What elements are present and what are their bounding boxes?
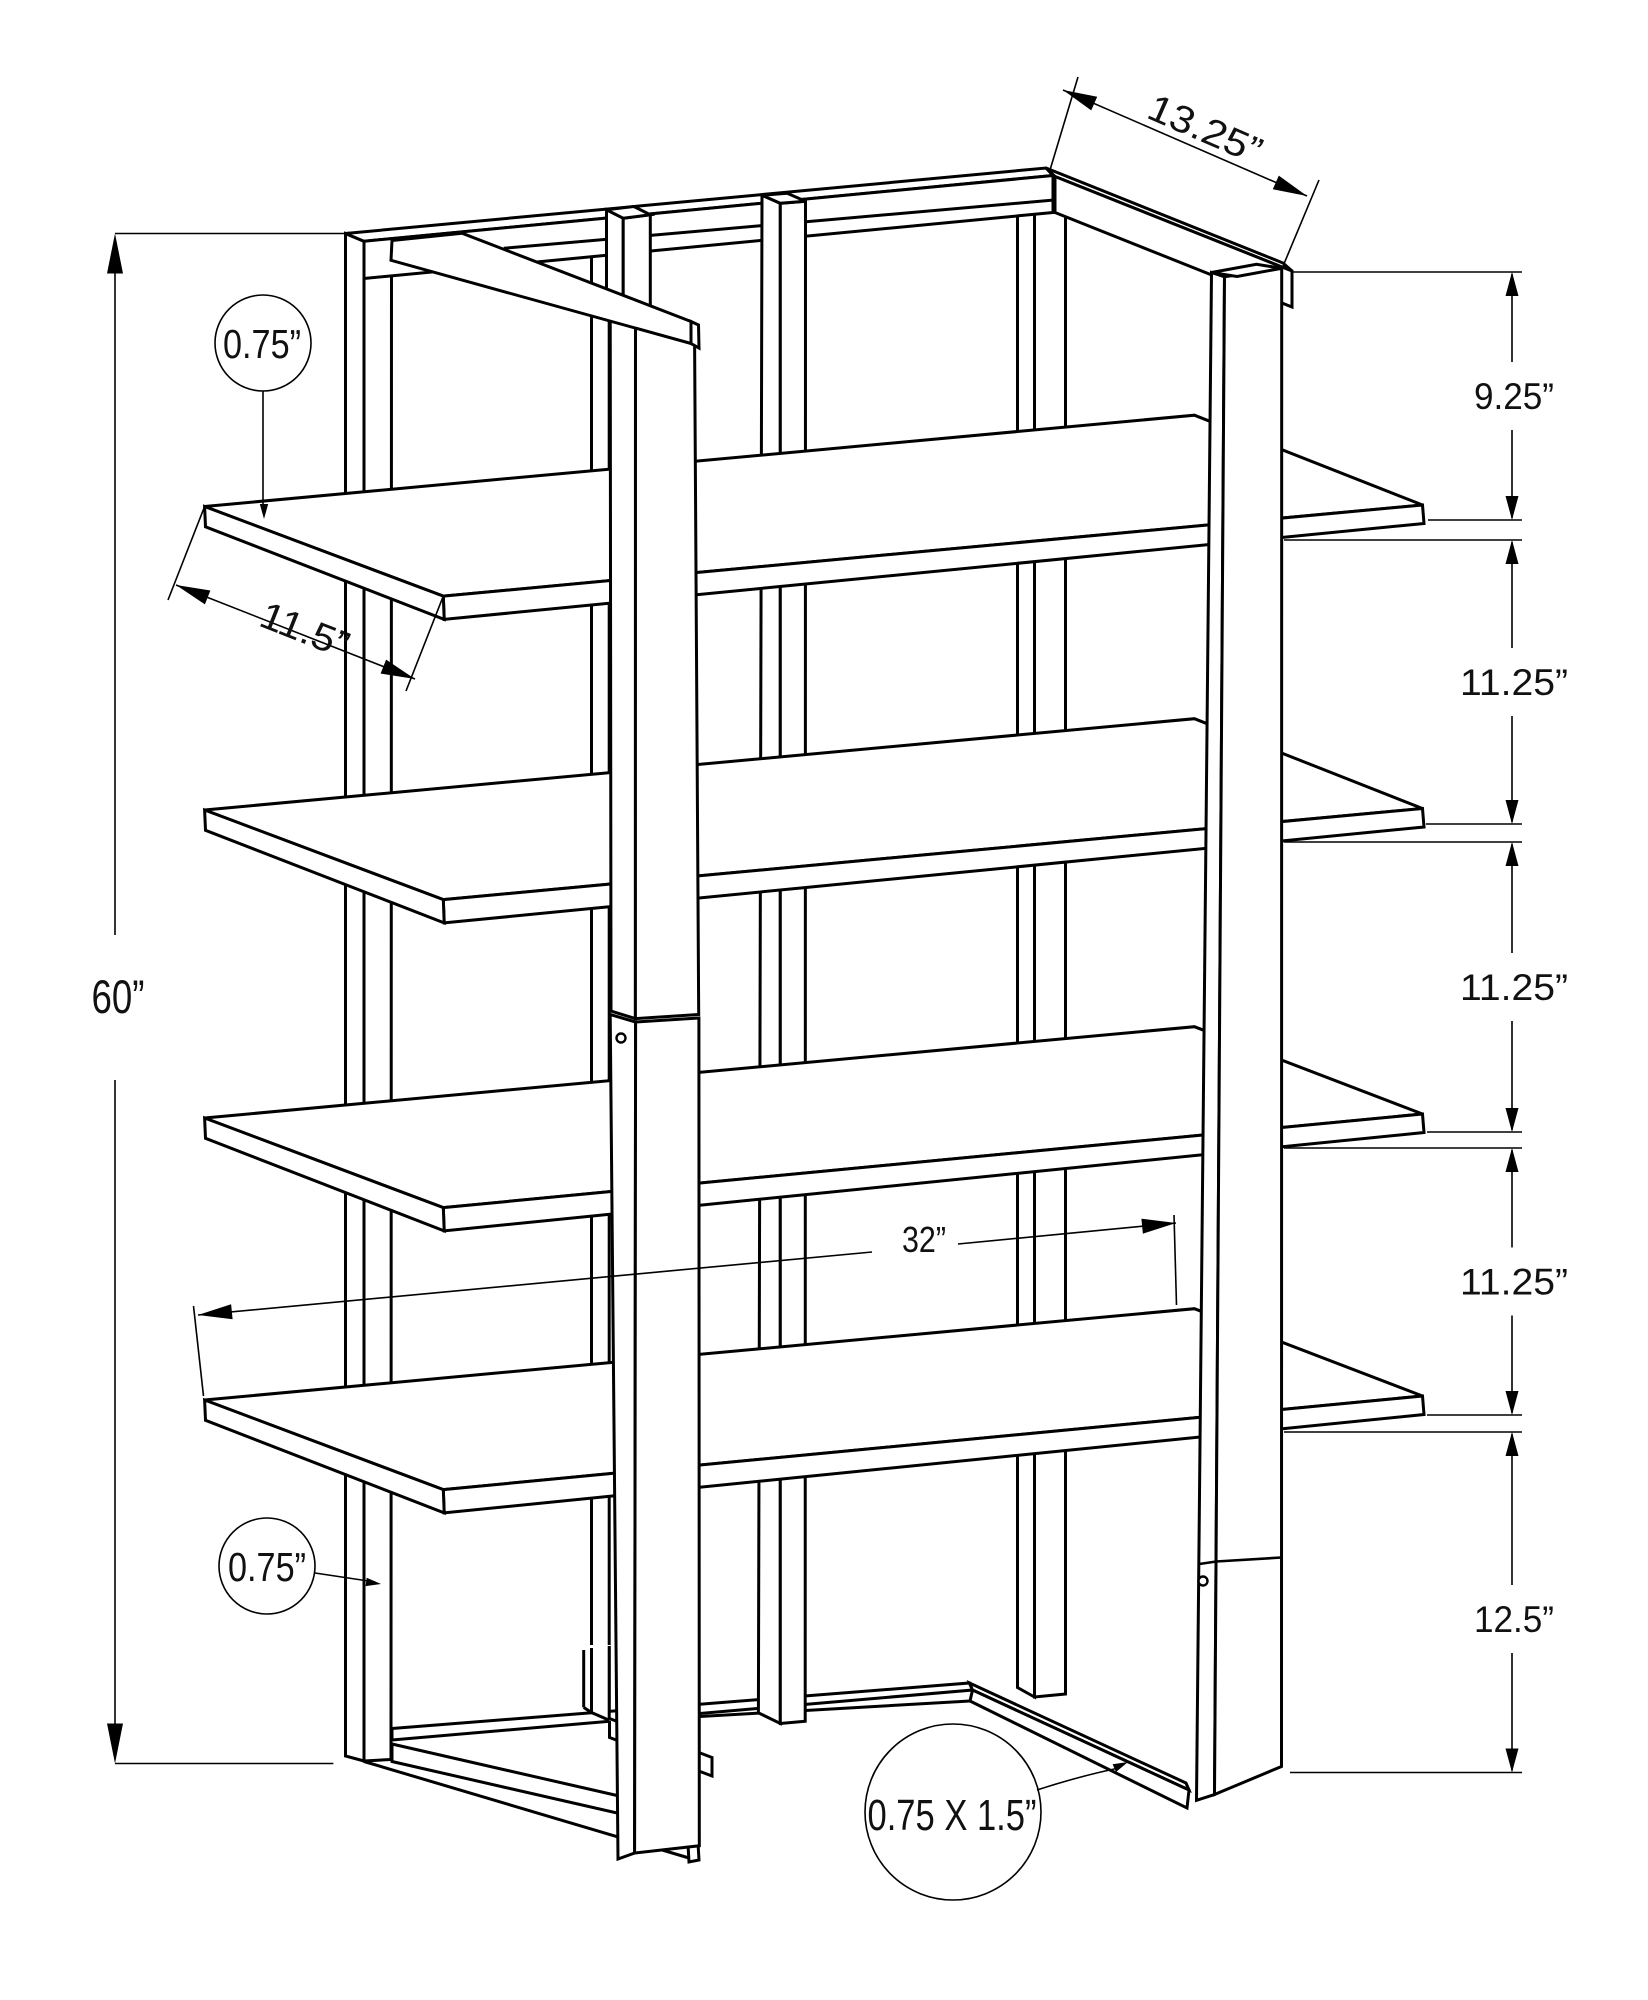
svg-text:11.25”: 11.25” (1460, 967, 1568, 1008)
svg-text:60”: 60” (92, 970, 145, 1023)
svg-text:11.25”: 11.25” (1460, 1262, 1568, 1303)
svg-text:0.75”: 0.75” (223, 321, 301, 367)
svg-text:32”: 32” (902, 1219, 946, 1260)
svg-text:11.25”: 11.25” (1460, 662, 1568, 703)
svg-text:9.25”: 9.25” (1474, 376, 1554, 417)
svg-text:0.75 X 1.5”: 0.75 X 1.5” (868, 1791, 1037, 1840)
svg-text:0.75”: 0.75” (228, 1544, 306, 1590)
svg-text:12.5”: 12.5” (1474, 1599, 1554, 1640)
